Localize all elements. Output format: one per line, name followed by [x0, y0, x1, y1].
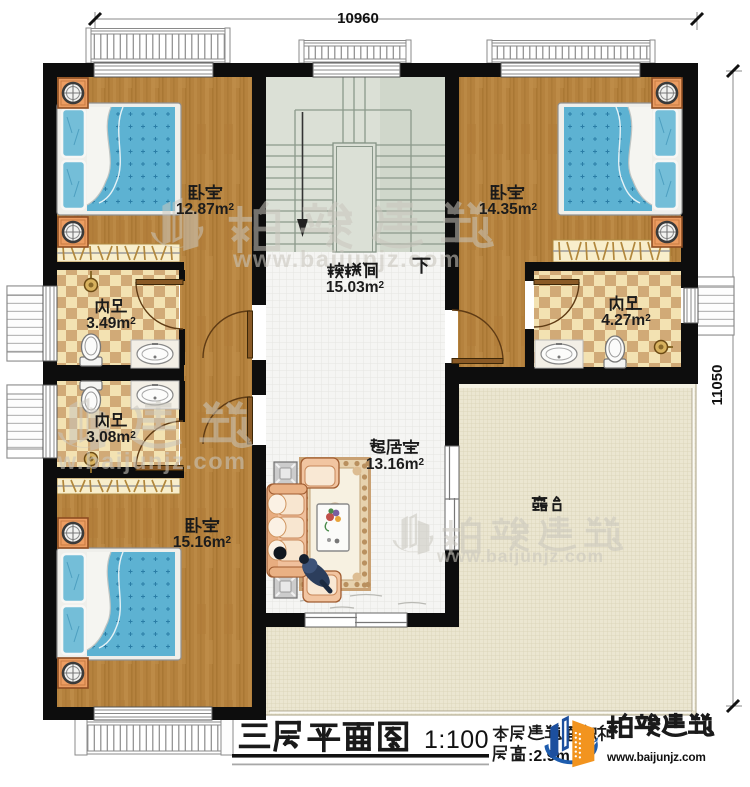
svg-text:www.baijunjz.com: www.baijunjz.com: [606, 750, 706, 764]
svg-text:4.27m2: 4.27m2: [601, 312, 651, 329]
svg-text:15.16m2: 15.16m2: [173, 534, 232, 551]
svg-text:14.35m2: 14.35m2: [479, 201, 538, 218]
svg-text:1:100: 1:100: [424, 726, 489, 754]
svg-text:3.08m2: 3.08m2: [86, 429, 136, 446]
svg-text:15.03m2: 15.03m2: [326, 279, 385, 296]
svg-text:12.87m2: 12.87m2: [176, 201, 235, 218]
svg-text:www.baijunjz.com: www.baijunjz.com: [436, 546, 604, 566]
svg-text:3.49m2: 3.49m2: [86, 315, 136, 332]
svg-text:w.baijunjz.com: w.baijunjz.com: [57, 448, 247, 474]
svg-text:13.16m2: 13.16m2: [366, 456, 425, 473]
svg-text:11050: 11050: [709, 365, 726, 406]
svg-text:10960: 10960: [337, 10, 379, 27]
